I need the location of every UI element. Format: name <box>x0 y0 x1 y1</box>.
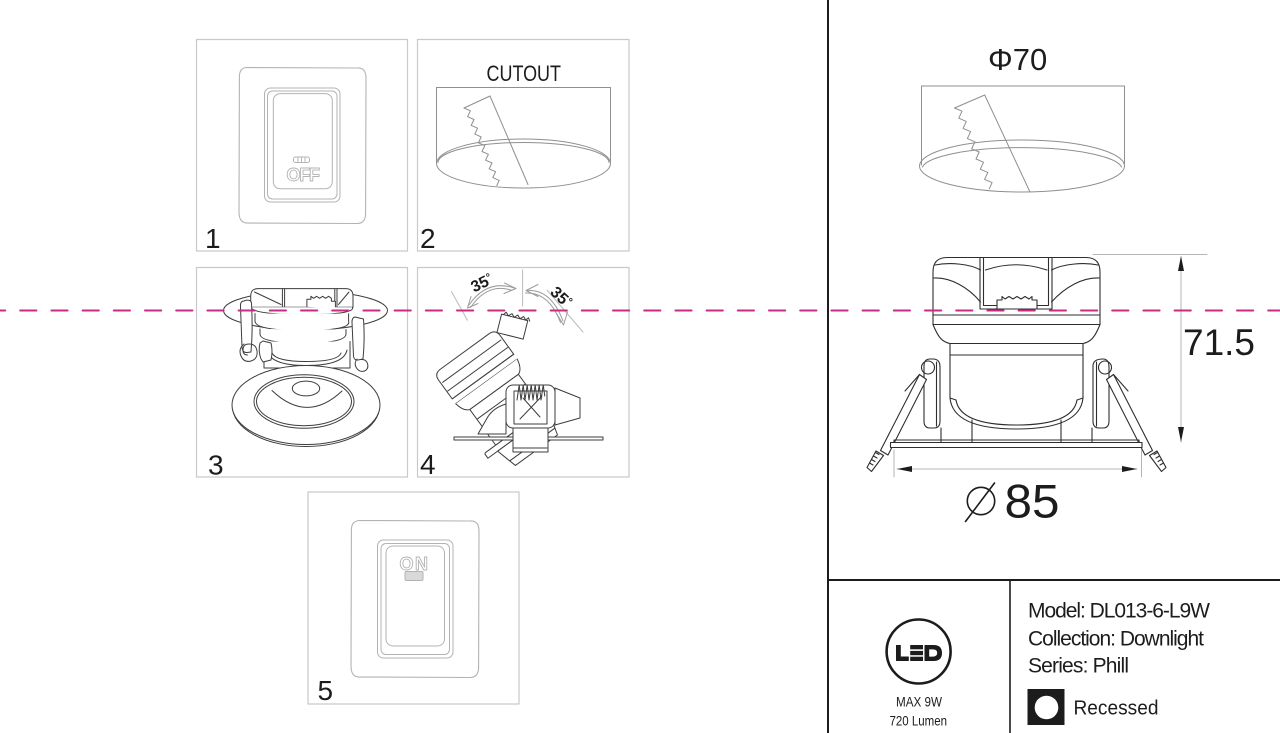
svg-text:Φ70: Φ70 <box>988 42 1047 77</box>
svg-text:720 Lumen: 720 Lumen <box>890 713 948 729</box>
svg-text:71.5: 71.5 <box>1183 322 1255 363</box>
svg-text:OFF: OFF <box>287 165 321 185</box>
svg-text:35°: 35° <box>468 271 495 296</box>
svg-text:1: 1 <box>205 223 221 254</box>
svg-text:Collection: Downlight: Collection: Downlight <box>1028 628 1204 651</box>
svg-text:3: 3 <box>208 450 224 481</box>
svg-text:85: 85 <box>1005 475 1060 528</box>
svg-text:Series: Phill: Series: Phill <box>1028 655 1129 678</box>
svg-text:MAX 9W: MAX 9W <box>896 694 943 710</box>
svg-text:4: 4 <box>420 449 436 480</box>
svg-text:Recessed: Recessed <box>1074 698 1159 720</box>
svg-text:2: 2 <box>420 223 436 254</box>
svg-text:CUTOUT: CUTOUT <box>487 61 562 86</box>
svg-text:35°: 35° <box>547 284 575 312</box>
svg-text:5: 5 <box>318 675 334 706</box>
svg-text:Model: DL013-6-L9W: Model: DL013-6-L9W <box>1028 600 1210 623</box>
